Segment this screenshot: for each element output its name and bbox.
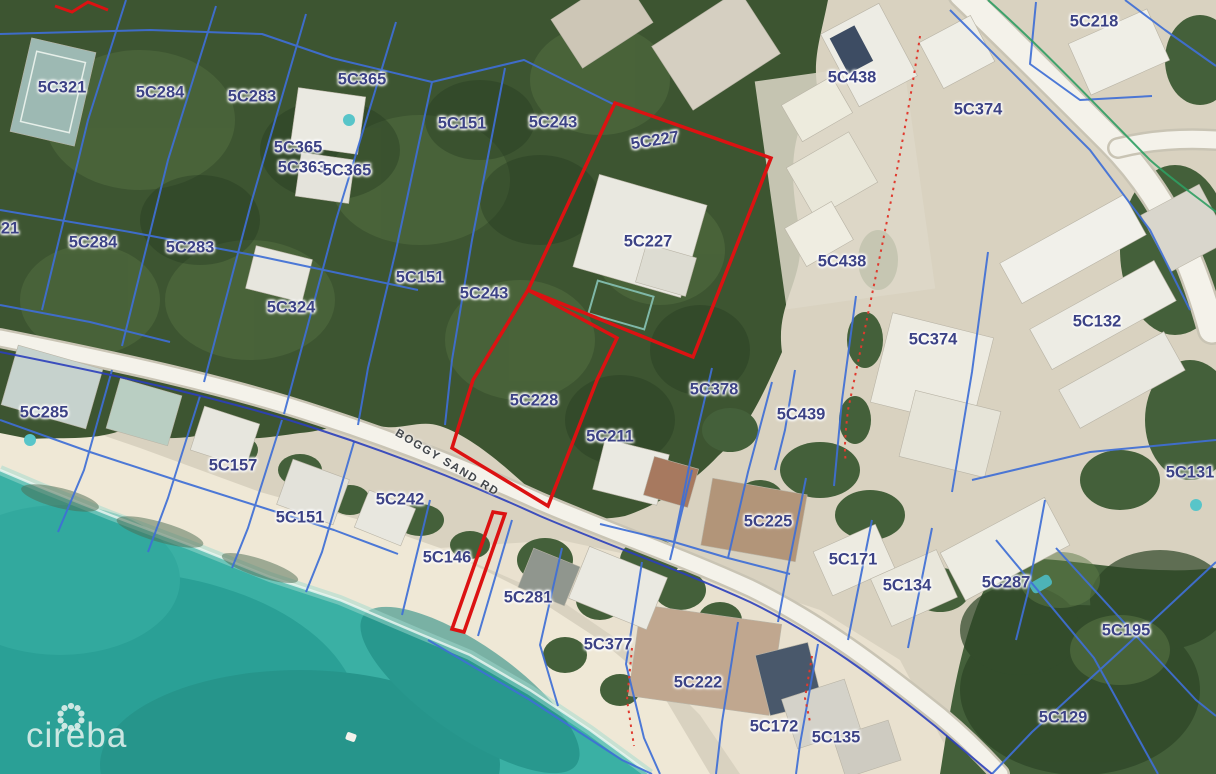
cireba-brand-text: cireba xyxy=(26,716,127,756)
map-viewport: 5C3215C2845C2835C3655C3655C3635C365215C2… xyxy=(0,0,1216,774)
aerial-basemap xyxy=(0,0,1216,774)
cireba-watermark: cireba xyxy=(22,698,202,768)
